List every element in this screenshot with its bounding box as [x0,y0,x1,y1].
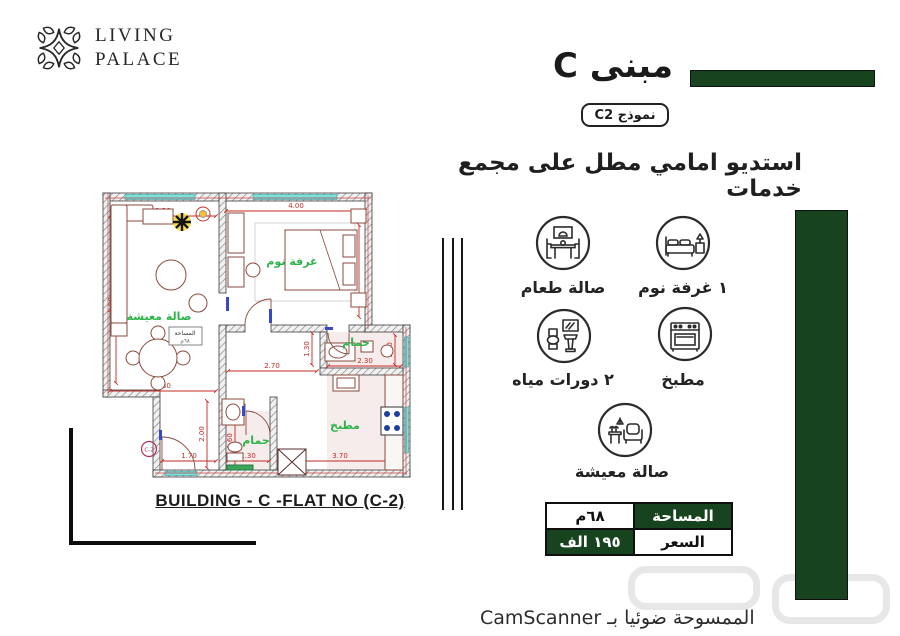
listing-subtitle: استديو امامي مطل على مجمع خدمات [430,150,802,202]
dim-hall-v: 1.30 [303,341,311,357]
feature-label-living: صالة معيشة [552,462,692,481]
divider-line [452,238,454,510]
bath-mat [227,465,253,470]
plan-caption: BUILDING - C -FLAT NO (C-2) [150,491,410,511]
feature-label-bedroom: ١ غرفة نوم [613,278,753,297]
dining-chair [151,326,165,340]
dim-hall-h: 2.70 [264,362,280,370]
model-badge: نموذج C2 [581,103,669,127]
toilet-bowl [381,345,393,357]
side-table [111,323,127,336]
dining-icon [535,215,591,271]
area-value: ٦٨م [546,503,634,529]
ornament-star-icon [33,22,85,74]
dim-bedroom-top: 4.00 [288,202,304,210]
toilet-bowl [228,442,242,452]
floor-plan: 3.30 4.00 5.50 3.70 1.30 2.70 2.30 1.30 … [85,185,425,485]
label-kitchen: مطبخ [330,419,360,432]
corner-frame-line [69,428,73,545]
tv-cabinet [143,209,173,224]
stamp-value: ٦٨م [180,339,189,345]
watermark-shape [628,566,760,610]
table-row: المساحة ٦٨م [546,503,732,529]
shaft [278,449,306,475]
label-bath-bottom: حمام [242,434,270,447]
light-symbols [173,207,210,231]
table-row: السعر ١٩٥ الف [546,529,732,555]
nightstand [351,209,366,223]
corner-frame-line [69,541,256,545]
brand-name: LIVING PALACE [95,24,182,72]
feature-label-dining: صالة طعام [493,278,633,297]
summary-table: المساحة ٦٨م السعر ١٩٥ الف [545,502,733,556]
stove [381,407,403,435]
small-table [189,294,207,312]
area-label: المساحة [634,503,732,529]
pillow [343,235,355,257]
wardrobe [228,213,244,253]
label-bedroom: غرفة نوم [266,255,317,268]
kitchen-sink [337,378,355,388]
label-living: صالة معيشة [127,310,192,323]
desk [228,257,244,287]
divider-line [442,238,444,510]
dining-chair [126,351,140,365]
stamp-title: المساحة [174,330,195,337]
dining-chair [151,376,165,390]
building-title: مبنى C [548,46,678,86]
dim-kitchen-w: 3.70 [332,452,348,460]
unit-tag-text: C-2 [144,448,153,454]
price-label: السعر [634,529,732,555]
feature-label-kitchen: مطبخ [613,370,753,389]
pillow [343,263,355,285]
coffee-table [156,260,186,290]
divider-line [461,238,463,510]
scanned-by-text: الممسوحة ضوئيا بـ CamScanner [480,607,896,629]
stove-icon [657,306,713,362]
nightstand [351,293,366,307]
bed-icon [655,215,711,271]
scanned-flyer-page: LIVING PALACE مبنى C نموذج C2 استديو اما… [0,0,900,636]
brand-line1: LIVING [95,24,182,48]
area-stamp: المساحة ٦٨م [169,327,202,345]
sink [226,404,240,420]
dim-entry-w: 1.70 [181,452,197,460]
toilet-icon [536,308,592,364]
label-bath-top: حمام [342,336,370,349]
sofa-left [111,205,127,323]
dining-chair [176,351,190,365]
brand-logo: LIVING PALACE [33,22,182,74]
feature-label-bathrooms: ٢ دورات مياه [493,370,633,389]
dim-entry-v: 2.00 [198,426,206,442]
header-accent-bar [690,70,875,87]
sofa-icon [597,402,653,458]
brand-line2: PALACE [95,48,182,72]
dim-bath-top-w: 2.30 [357,357,373,365]
desk-chair [246,263,260,277]
side-accent-bar [795,210,848,600]
room-floors [226,332,403,470]
price-value: ١٩٥ الف [546,529,634,555]
toilet-base [227,453,243,461]
